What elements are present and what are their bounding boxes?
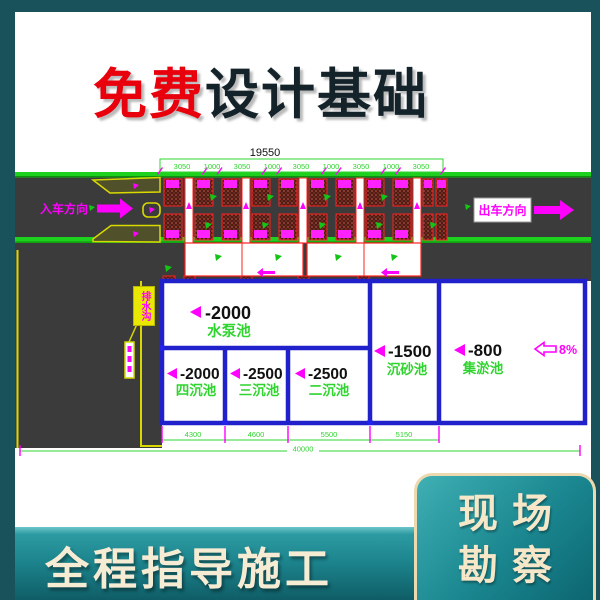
overall-dimension: 40000 [293,445,314,454]
dim-1000-2: 1000 [264,162,281,171]
dim-pool-3: 5500 [321,430,338,439]
pool-fourth-name: 四沉池 [176,382,217,398]
title-rest: 设计基础 [205,65,429,125]
badge-line-1: 现场 [458,491,566,537]
slogan: 全程指导施工 [45,533,333,597]
pool-grit-depth: -1500 [388,342,431,361]
dimension-header: 19550 3050 1000 3050 1000 3050 1000 3050… [158,147,446,175]
site-plan: 19550 3050 1000 3050 1000 3050 1000 3050… [15,130,591,460]
dim-3050-2: 3050 [234,162,251,171]
dim-3050-5: 3050 [413,162,430,171]
pool-pump-name: 水泵池 [207,322,251,340]
dim-1000-3: 1000 [323,162,340,171]
pool-second-depth: -2500 [308,366,348,383]
frame-left [0,0,15,600]
dim-pool-1: 4300 [185,430,202,439]
dim-1000-1: 1000 [204,162,221,171]
dim-3050-1: 3050 [174,162,191,171]
pool-pump-depth: -2000 [205,303,251,323]
pools: -2000 水泵池 -2000 四沉池 -2500 三沉池 -2500 二沉池 … [160,281,586,425]
drain-callout: 排水沟 [133,286,155,326]
pool-second-name: 二沉池 [309,382,350,398]
pool-third-name: 三沉池 [239,382,280,398]
dim-pool-2: 4600 [248,430,265,439]
pool-fourth-depth: -2000 [180,366,220,383]
dim-3050-3: 3050 [293,162,310,171]
promo-card: 免费设计基础 19550 [0,0,600,600]
badge-line-2: 勘察 [458,543,566,589]
pool-sludge-depth: -800 [468,341,502,360]
dim-pool-4: 5150 [396,430,413,439]
title-highlight: 免费 [93,65,205,125]
dim-3050-4: 3050 [353,162,370,171]
total-dimension: 19550 [250,147,281,159]
frame-top [0,0,600,12]
badge-panel: 现场 勘察 [414,473,596,600]
pool-third-depth: -2500 [243,366,283,383]
exit-label: 出车方向 [478,203,526,218]
pool-sludge-name: 集淤池 [462,360,504,376]
slope-label: 8% [559,343,577,357]
pool-grit-name: 沉砂池 [387,361,428,377]
main-title: 免费设计基础 [15,50,507,129]
entry-label: 入车方向 [40,201,88,216]
dim-1000-4: 1000 [383,162,400,171]
